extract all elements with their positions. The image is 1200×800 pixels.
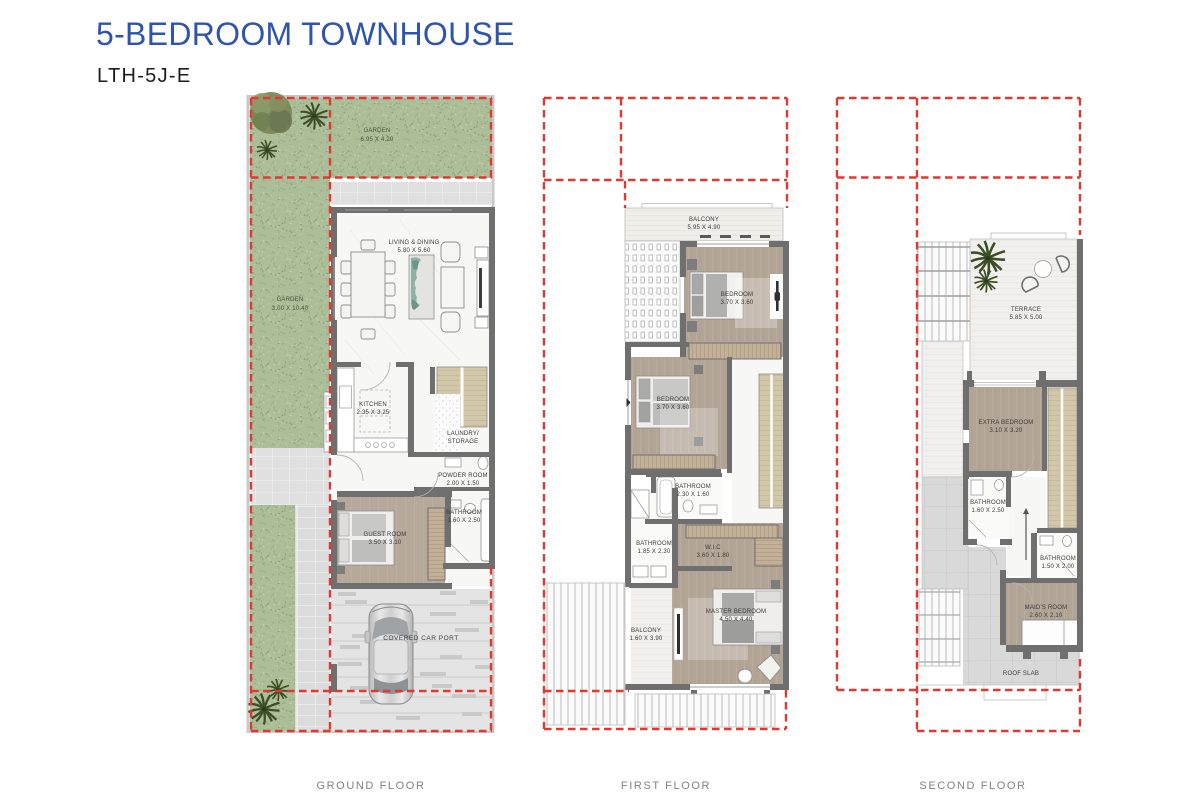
svg-text:3.70 X 3.60: 3.70 X 3.60 — [657, 405, 690, 411]
svg-text:2.35 X 3.25: 2.35 X 3.25 — [357, 410, 390, 416]
svg-text:POWDER ROOM: POWDER ROOM — [438, 473, 488, 479]
svg-text:COVERED CAR PORT: COVERED CAR PORT — [383, 635, 458, 642]
svg-text:BEDROOM: BEDROOM — [721, 292, 753, 298]
svg-text:MAID'S ROOM: MAID'S ROOM — [1025, 605, 1068, 611]
svg-text:BATHROOM: BATHROOM — [1040, 556, 1076, 562]
svg-text:SECOND FLOOR: SECOND FLOOR — [919, 780, 1026, 792]
svg-text:6.95 X 4.20: 6.95 X 4.20 — [361, 137, 394, 143]
svg-text:BATHROOM: BATHROOM — [636, 541, 672, 547]
svg-text:1.85 X 2.30: 1.85 X 2.30 — [638, 549, 671, 555]
svg-text:3.00 X 10.40: 3.00 X 10.40 — [272, 306, 309, 312]
svg-text:GUEST ROOM: GUEST ROOM — [364, 532, 407, 538]
svg-text:3.10 X 3.20: 3.10 X 3.20 — [990, 428, 1023, 434]
svg-text:BATHROOM: BATHROOM — [675, 484, 711, 490]
svg-text:GARDEN: GARDEN — [277, 297, 304, 303]
svg-text:3.60 X 1.80: 3.60 X 1.80 — [697, 553, 730, 559]
svg-text:GROUND FLOOR: GROUND FLOOR — [316, 780, 425, 792]
svg-text:ROOF SLAB: ROOF SLAB — [1003, 671, 1039, 677]
svg-text:3.70 X 3.60: 3.70 X 3.60 — [721, 300, 754, 306]
svg-text:4.50 X 4.40: 4.50 X 4.40 — [720, 617, 753, 623]
svg-text:5.95 X 4.90: 5.95 X 4.90 — [688, 225, 721, 231]
svg-text:MASTER BEDROOM: MASTER BEDROOM — [706, 609, 766, 615]
svg-text:BEDROOM: BEDROOM — [657, 397, 689, 403]
svg-text:GARDEN: GARDEN — [364, 128, 391, 134]
svg-text:1.50 X 2.00: 1.50 X 2.00 — [1042, 564, 1075, 570]
svg-text:3.50 X 3.10: 3.50 X 3.10 — [369, 540, 402, 546]
svg-text:LTH-5J-E: LTH-5J-E — [97, 65, 191, 87]
svg-text:STORAGE: STORAGE — [448, 439, 479, 445]
svg-text:1.60 X 3.90: 1.60 X 3.90 — [630, 636, 663, 642]
svg-text:KITCHEN: KITCHEN — [359, 402, 387, 408]
svg-text:FIRST FLOOR: FIRST FLOOR — [621, 780, 711, 792]
svg-text:5.85 X 5.00: 5.85 X 5.00 — [1010, 315, 1043, 321]
svg-text:BALCONY: BALCONY — [631, 628, 661, 634]
svg-text:1.60 X 2.50: 1.60 X 2.50 — [448, 518, 481, 524]
svg-text:BATHROOM: BATHROOM — [970, 500, 1006, 506]
svg-text:2.00 X 1.50: 2.00 X 1.50 — [447, 481, 480, 487]
svg-text:TERRACE: TERRACE — [1011, 307, 1041, 313]
svg-text:BALCONY: BALCONY — [689, 217, 719, 223]
svg-text:2.60 X 2.10: 2.60 X 2.10 — [1030, 613, 1063, 619]
svg-text:W.I.C: W.I.C — [705, 545, 721, 551]
svg-text:LAUNDRY/: LAUNDRY/ — [447, 431, 479, 437]
svg-text:LIVING & DINING: LIVING & DINING — [388, 240, 439, 246]
svg-text:5-BEDROOM TOWNHOUSE: 5-BEDROOM TOWNHOUSE — [96, 16, 515, 52]
svg-text:1.60 X 2.50: 1.60 X 2.50 — [972, 508, 1005, 514]
svg-text:BATHROOM: BATHROOM — [446, 510, 482, 516]
svg-text:5.80 X 5.60: 5.80 X 5.60 — [398, 248, 431, 254]
svg-text:EXTRA BEDROOM: EXTRA BEDROOM — [979, 420, 1034, 426]
svg-text:2.30 X 1.60: 2.30 X 1.60 — [677, 492, 710, 498]
